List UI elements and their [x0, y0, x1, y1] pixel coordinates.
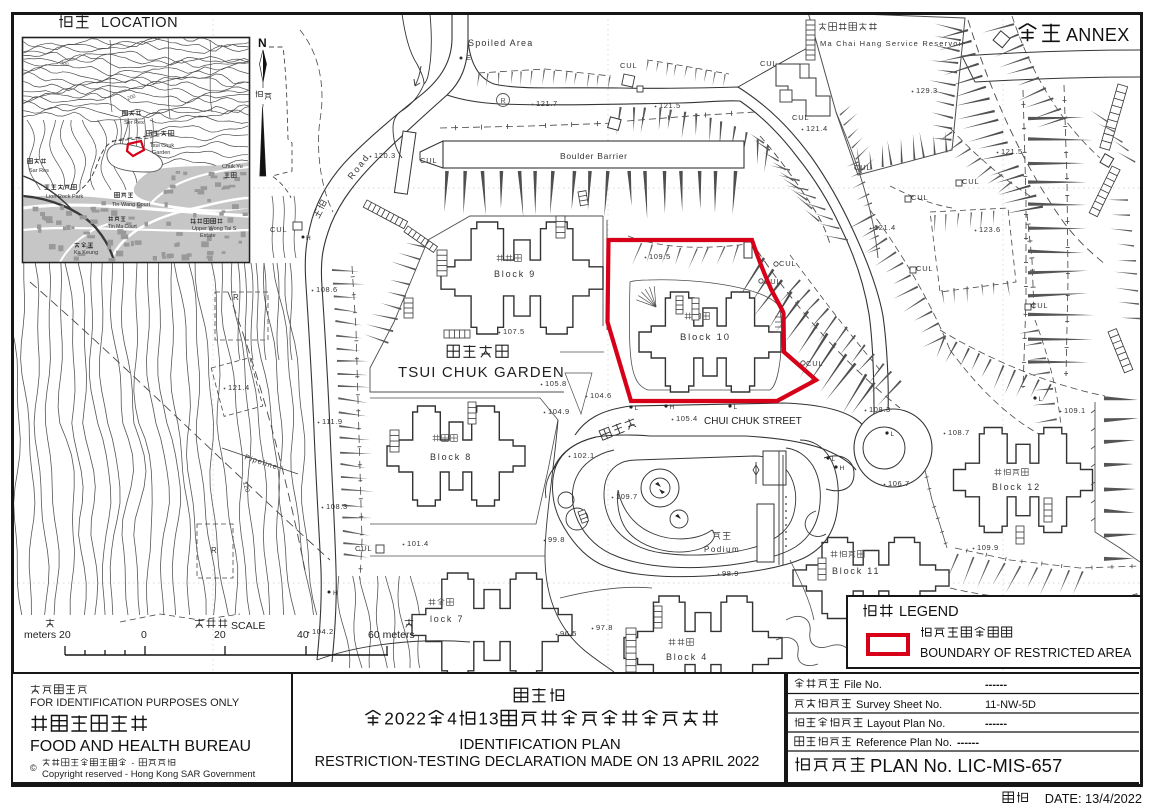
svg-text:------: ------: [985, 679, 1007, 691]
svg-text:Layout Plan No.: Layout Plan No.: [867, 718, 945, 730]
svg-text:PLAN No. LIC-MIS-657: PLAN No. LIC-MIS-657: [870, 755, 1062, 776]
svg-text:1: 1: [478, 709, 488, 729]
svg-text:Copyright reserved - Hong Kong: Copyright reserved - Hong Kong SAR Gover…: [42, 769, 256, 780]
svg-text:LEGEND: LEGEND: [899, 604, 959, 620]
svg-text:0: 0: [141, 629, 147, 641]
svg-text:2: 2: [384, 709, 394, 729]
svg-text:Reference Plan No.: Reference Plan No.: [856, 737, 952, 749]
svg-text:Survey Sheet No.: Survey Sheet No.: [856, 699, 942, 711]
svg-text:60 meters: 60 meters: [368, 629, 415, 641]
svg-text:SCALE: SCALE: [231, 620, 265, 632]
svg-text:2: 2: [406, 709, 416, 729]
svg-text:FOOD AND HEALTH BUREAU: FOOD AND HEALTH BUREAU: [30, 738, 251, 755]
svg-text:0: 0: [395, 709, 405, 729]
svg-text:2: 2: [416, 709, 426, 729]
svg-text:RESTRICTION-TESTING DECLARATIO: RESTRICTION-TESTING DECLARATION MADE ON …: [315, 754, 760, 770]
svg-text:FOR IDENTIFICATION PURPOSES ON: FOR IDENTIFICATION PURPOSES ONLY: [30, 697, 240, 709]
svg-text:DATE: 13/4/2022: DATE: 13/4/2022: [1045, 791, 1142, 806]
svg-text:3: 3: [489, 709, 499, 729]
svg-text:4: 4: [447, 709, 457, 729]
svg-text:------: ------: [985, 718, 1007, 730]
svg-text:40: 40: [297, 629, 309, 641]
svg-text:IDENTIFICATION PLAN: IDENTIFICATION PLAN: [459, 736, 620, 753]
svg-text:------: ------: [957, 737, 979, 749]
svg-text:©: ©: [30, 763, 37, 773]
svg-text:File No.: File No.: [844, 679, 882, 691]
svg-text:11-NW-5D: 11-NW-5D: [985, 699, 1036, 711]
svg-text:meters 20: meters 20: [24, 629, 71, 641]
svg-text:-: -: [132, 758, 135, 767]
svg-text:BOUNDARY OF RESTRICTED AREA: BOUNDARY OF RESTRICTED AREA: [920, 646, 1132, 660]
svg-text:20: 20: [214, 629, 226, 641]
